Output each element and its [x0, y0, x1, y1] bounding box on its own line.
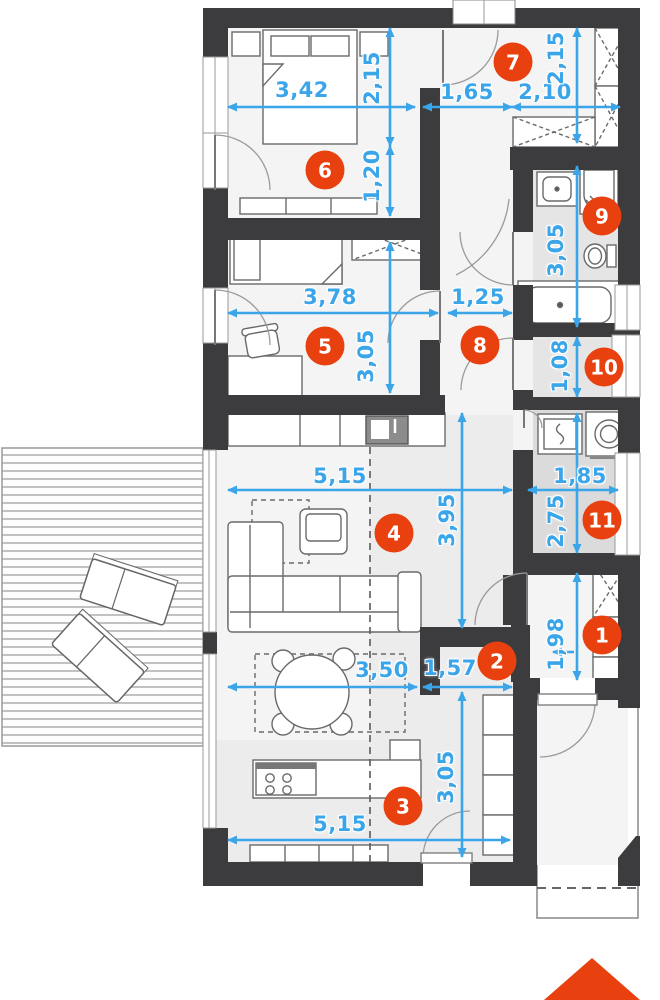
room-badge-10: 10	[585, 348, 624, 387]
sink-icon	[537, 172, 577, 206]
dimension-label: 1,57	[423, 656, 477, 680]
dimension-label: 1,85	[553, 464, 607, 488]
dimension-label: 3,05	[354, 329, 378, 383]
room-badge-1: 1	[583, 616, 622, 655]
room-badge-8: 8	[461, 326, 500, 365]
dimension-label: 3,95	[435, 493, 459, 547]
toilet-icon	[584, 244, 616, 268]
dimension-label: 3,50	[355, 658, 409, 682]
boiler-icon	[538, 414, 582, 454]
desk-icon	[228, 356, 302, 396]
dimension-label: 5,15	[313, 464, 367, 488]
dimension-label: 2,15	[360, 51, 384, 105]
room-badge-2: 2	[478, 642, 517, 681]
back-door-opening	[423, 862, 470, 886]
dimension-label: 1,65	[440, 80, 494, 104]
room-badge-9: 9	[583, 197, 622, 236]
kitchen-counter-icon	[228, 413, 445, 446]
dimension-label: 1,25	[451, 285, 505, 309]
room-badge-5: 5	[306, 327, 345, 366]
bathtub-icon	[518, 281, 619, 329]
armchair-icon	[300, 509, 347, 554]
room-badge-11: 11	[583, 501, 622, 540]
room-badge-6: 6	[306, 151, 345, 190]
dimension-label: 1,08	[548, 339, 572, 393]
dimension-label: 2,75	[544, 494, 568, 548]
shelving-icon	[483, 695, 515, 855]
room-badge-3: 3	[384, 787, 423, 826]
entrance-arrow-icon	[544, 958, 640, 1000]
dimension-label: 5,15	[313, 812, 367, 836]
terrace	[2, 448, 203, 746]
floor-plan: 3,42 2,15 1,65 2,10 2,15 1,20 3,78 1,25 …	[0, 0, 660, 1000]
chair-icon	[241, 323, 282, 359]
dimension-label: 3,78	[303, 285, 357, 309]
room-badge-4: 4	[375, 514, 414, 553]
sideboard-icon	[250, 845, 388, 862]
dimension-label: 1,20	[360, 149, 384, 203]
dimension-label: 2,15	[544, 31, 568, 85]
room-badge-7: 7	[494, 43, 533, 82]
dimension-label: 3,05	[544, 223, 568, 277]
dimension-label: 3,05	[434, 750, 458, 804]
dimension-label: 3,42	[275, 78, 329, 102]
dimension-label: 1,98	[544, 617, 568, 671]
dresser-icon	[240, 198, 377, 214]
